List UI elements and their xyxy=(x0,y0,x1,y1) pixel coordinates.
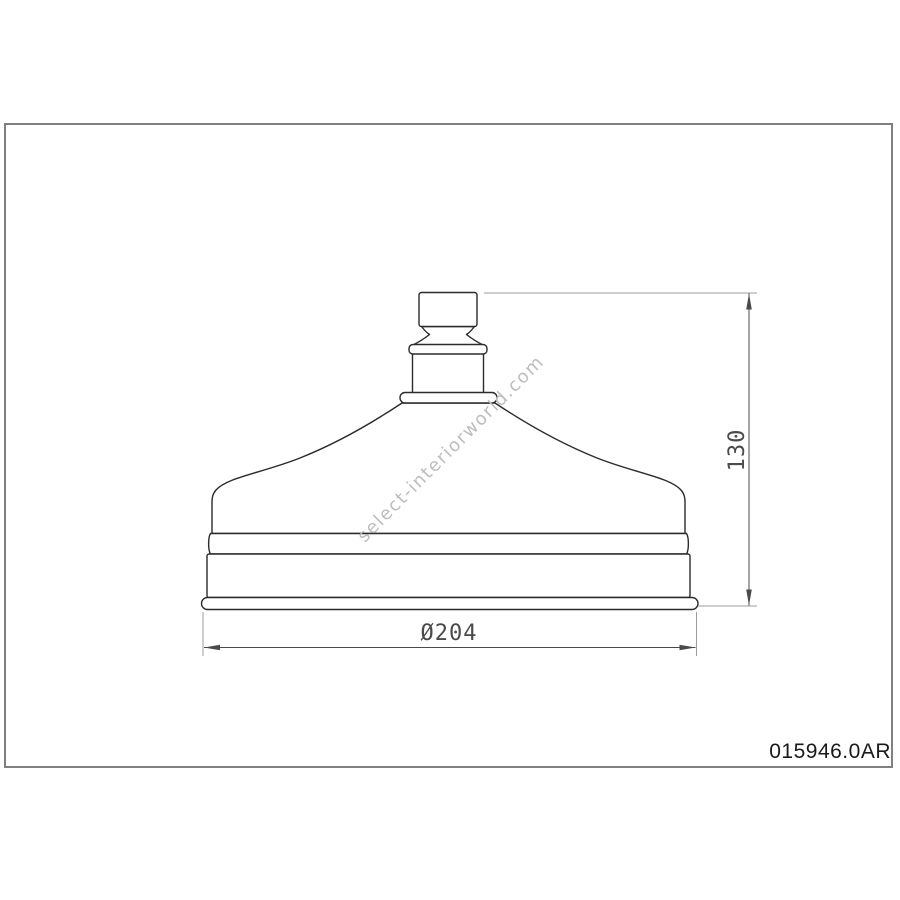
part-number: 015946.0AR xyxy=(769,740,891,764)
height-arrow-top-icon xyxy=(746,294,752,310)
neck-flare-outline xyxy=(412,327,484,346)
diameter-arrow-right-icon xyxy=(680,645,696,651)
neck-cylinder-outline xyxy=(413,353,484,394)
drawing-sheet: select-interiorworld.com Ø204 130 015946… xyxy=(0,0,900,900)
upper-collar-outline xyxy=(409,345,487,355)
upper-rim-band-outline xyxy=(209,534,689,555)
bottom-lip-outline xyxy=(202,598,699,610)
pipe-connector-outline xyxy=(419,293,477,327)
height-arrow-bottom-icon xyxy=(746,590,752,606)
height-dimension-label: 130 xyxy=(727,429,749,472)
bell-dome-outline xyxy=(212,403,685,534)
lower-rim-band-outline xyxy=(207,554,690,598)
diameter-arrow-left-icon xyxy=(204,645,220,651)
diameter-dimension-label: Ø204 xyxy=(421,623,478,645)
